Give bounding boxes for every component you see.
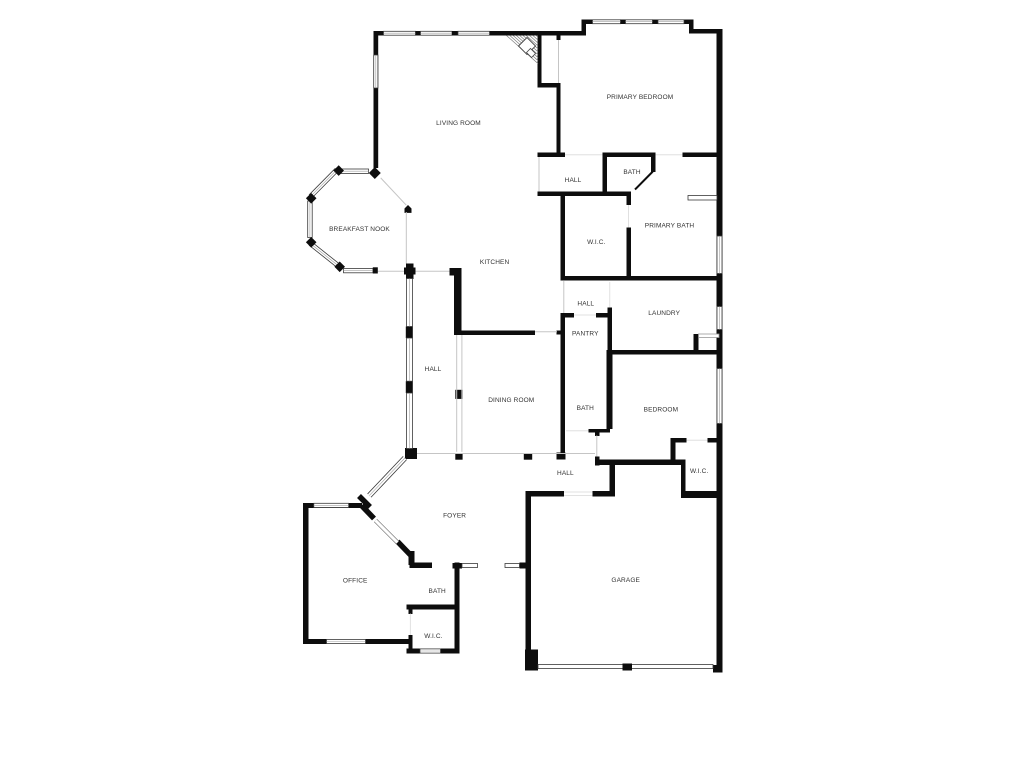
svg-text:W.I.C.: W.I.C. [587,239,605,246]
svg-text:KITCHEN: KITCHEN [480,259,510,266]
svg-text:BATH: BATH [623,169,641,176]
svg-text:LAUNDRY: LAUNDRY [648,310,680,317]
svg-text:BATH: BATH [429,588,447,595]
svg-text:HALL: HALL [557,470,574,477]
svg-text:HALL: HALL [565,177,582,184]
svg-text:GARAGE: GARAGE [611,577,640,584]
svg-text:FOYER: FOYER [443,513,466,520]
svg-text:LIVING ROOM: LIVING ROOM [436,120,481,127]
svg-text:PRIMARY BEDROOM: PRIMARY BEDROOM [607,94,674,101]
svg-text:BATH: BATH [577,405,595,412]
svg-text:BEDROOM: BEDROOM [644,406,678,413]
svg-text:W.I.C.: W.I.C. [690,468,708,475]
svg-text:HALL: HALL [425,366,442,373]
svg-text:PRIMARY BATH: PRIMARY BATH [645,223,695,230]
svg-text:BREAKFAST NOOK: BREAKFAST NOOK [329,226,390,233]
svg-text:HALL: HALL [577,300,594,307]
svg-text:W.I.C.: W.I.C. [424,633,442,640]
svg-text:OFFICE: OFFICE [343,578,368,585]
svg-text:PANTRY: PANTRY [572,331,599,338]
svg-text:DINING ROOM: DINING ROOM [488,397,534,404]
